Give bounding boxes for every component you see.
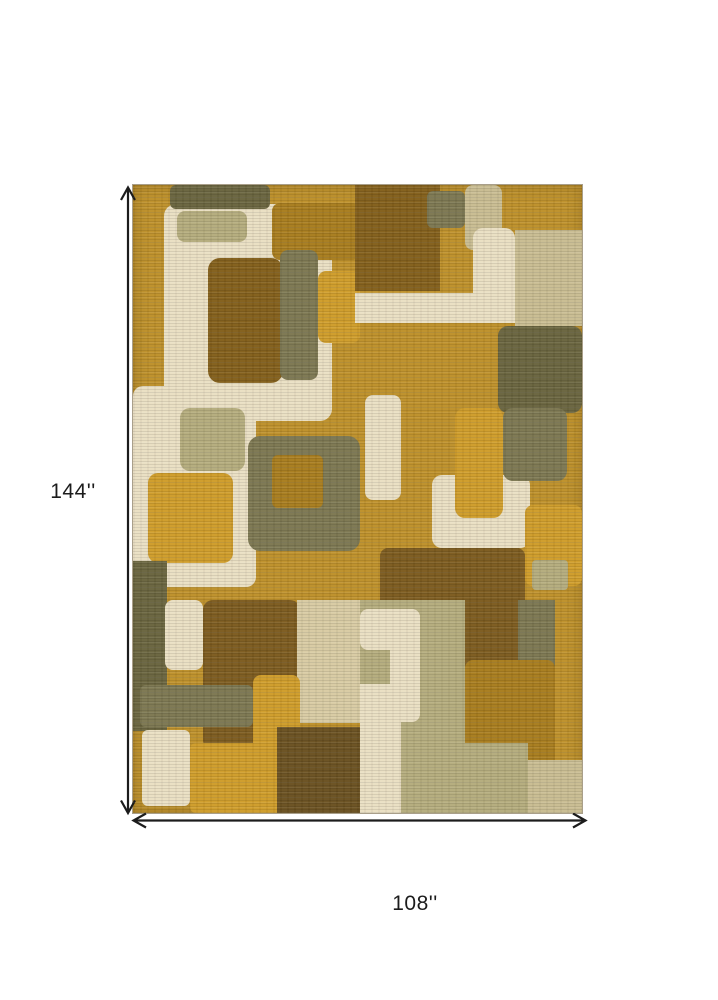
rug-color-block <box>455 743 528 813</box>
rug-color-block <box>503 408 567 481</box>
rug-color-block <box>355 293 515 323</box>
rug-color-block <box>528 760 582 813</box>
rug-color-block <box>297 600 360 723</box>
rug-image <box>133 185 582 813</box>
rug-color-block <box>140 685 253 727</box>
rug-color-block <box>360 684 400 813</box>
rug-color-block <box>142 730 190 806</box>
dimension-diagram: 144'' 108'' <box>0 0 718 1000</box>
rug-color-block <box>515 230 582 326</box>
rug-color-block <box>177 211 247 242</box>
rug-color-block <box>190 743 277 813</box>
rug-color-block <box>180 408 245 471</box>
rug-color-block <box>280 250 318 380</box>
rug-color-block <box>208 258 283 383</box>
rug-color-block <box>427 191 465 227</box>
rug-color-block <box>532 560 568 590</box>
rug-color-block <box>455 408 503 518</box>
rug-color-block <box>165 600 203 670</box>
rug-color-block <box>148 473 233 563</box>
width-dimension-line <box>134 814 586 828</box>
rug-color-block <box>170 185 270 209</box>
width-dimension-label: 108'' <box>375 893 455 914</box>
rug-color-block <box>277 727 361 813</box>
rug-color-block <box>365 395 401 501</box>
height-dimension-label: 144'' <box>36 481 110 502</box>
rug-color-block <box>498 326 582 413</box>
rug-color-block <box>272 455 323 508</box>
